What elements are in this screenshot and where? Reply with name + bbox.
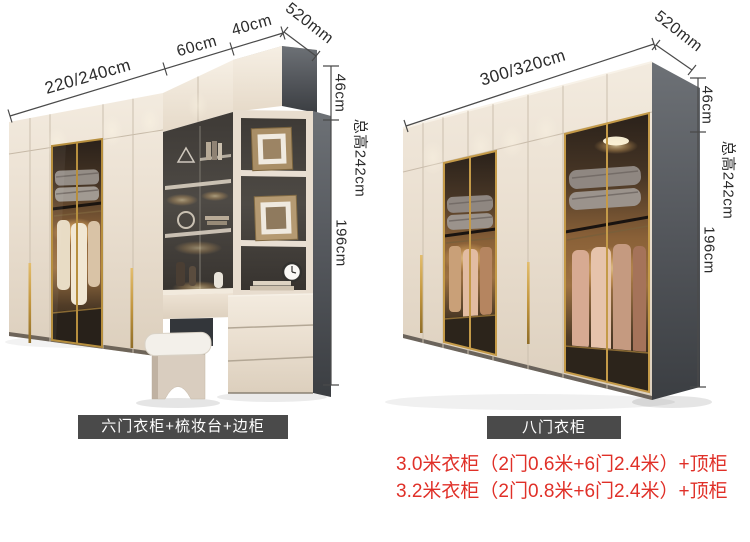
product-dimension-sheet: 220/240cm 60cm 40cm 520mm 46cm 总高242cm 1… [0,0,750,542]
stool-cushion [145,332,212,356]
note-line-1: 3.0米衣柜（2门0.6米+6门2.4米）+顶柜 [396,451,728,478]
right-side-panel [652,62,700,400]
left-body-height-label: 196cm [333,219,350,267]
right-total-height-label: 总高242cm [719,141,740,220]
left-drawer-cabinet [228,294,313,393]
decor-clock [283,263,301,281]
right-glass-pair-1 [442,151,496,355]
note-line-2: 3.2米衣柜（2门0.8米+6门2.4米）+顶柜 [396,478,728,505]
left-total-height-label: 总高242cm [351,119,372,198]
configuration-notes: 3.0米衣柜（2门0.6米+6门2.4米）+顶柜 3.2米衣柜（2门0.8米+6… [396,451,728,505]
right-unit-caption-badge: 八门衣柜 [487,416,621,439]
left-side-panel [313,111,331,397]
right-body-height-label: 196cm [701,226,718,274]
left-unit-caption-badge: 六门衣柜+梳妆台+边柜 [78,415,288,439]
left-stool [145,332,212,399]
left-glass-doors [52,139,102,347]
left-dresser-hutch [163,60,233,295]
decor-books-top [206,141,222,160]
picture-frame-bottom [254,195,298,240]
left-top-cabinet-box [233,46,317,113]
left-shelf-column [233,110,313,296]
left-top-cabinet-height-label: 46cm [332,74,349,113]
right-glass-pair-2 [565,113,649,392]
picture-frame-top [251,127,292,170]
right-top-cabinet-height-label: 46cm [699,86,716,125]
